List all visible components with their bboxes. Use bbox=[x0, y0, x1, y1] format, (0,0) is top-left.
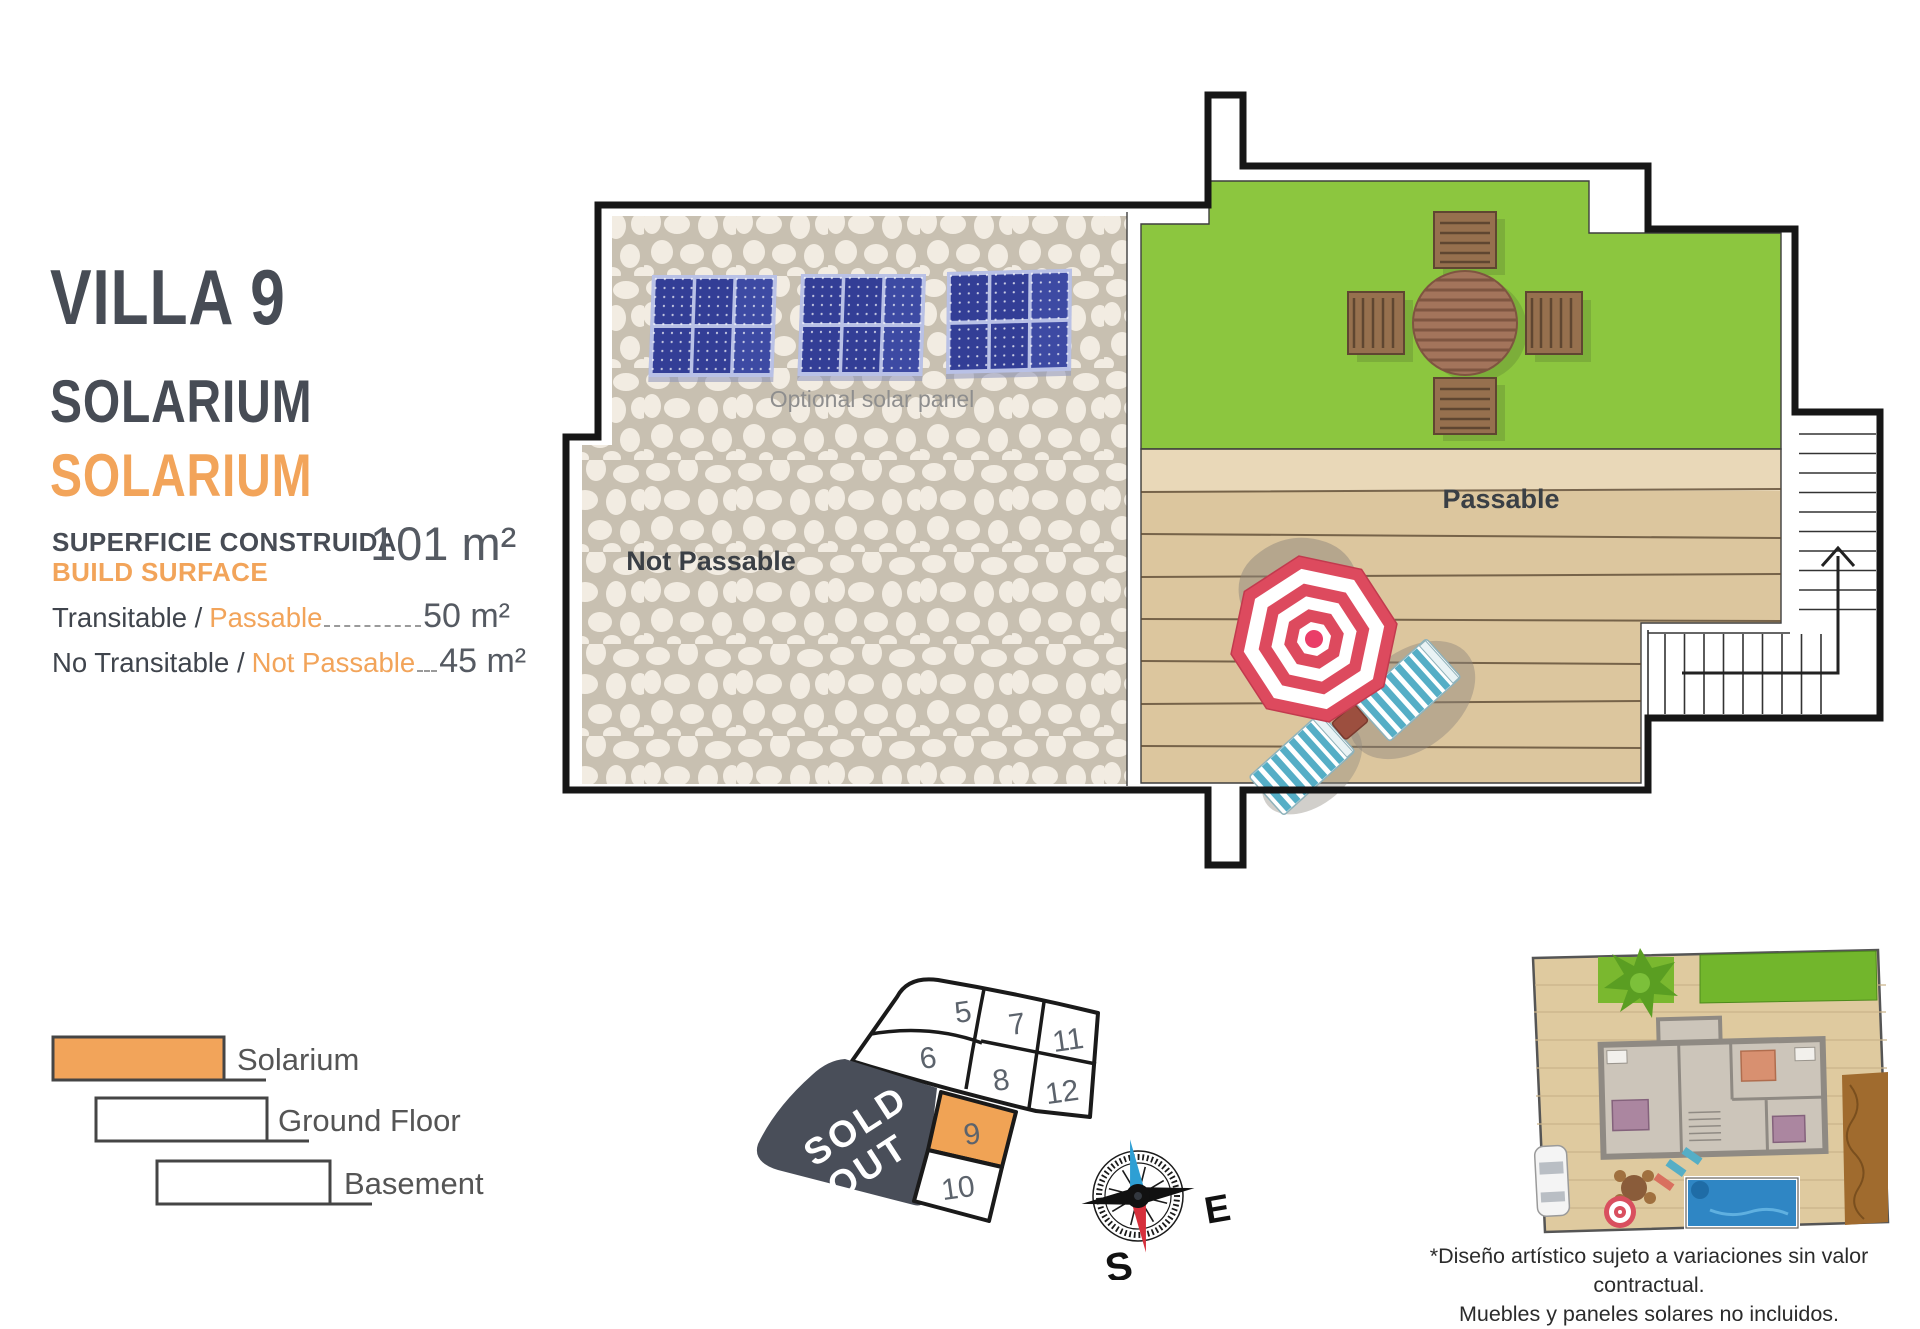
bed-icon bbox=[1741, 1050, 1776, 1081]
solarium-floor-plan: Optional solar panel Not Passable Passab… bbox=[566, 95, 1880, 865]
legend-label-solarium: Solarium bbox=[237, 1042, 359, 1077]
legend-label-basement: Basement bbox=[344, 1166, 484, 1201]
legend-swatch-solarium bbox=[53, 1037, 224, 1080]
compass-south-label: S bbox=[1102, 1244, 1136, 1280]
mini-umbrella bbox=[1604, 1196, 1636, 1228]
bath-fixture bbox=[1795, 1047, 1815, 1061]
minimap-dirt bbox=[1842, 1072, 1888, 1225]
pool-icon bbox=[1686, 1178, 1798, 1228]
disclaimer-line-2: Muebles y paneles solares no incluidos. bbox=[1399, 1300, 1899, 1329]
bath-fixture bbox=[1607, 1050, 1627, 1064]
chair-icon bbox=[1348, 292, 1404, 354]
bed-icon bbox=[1773, 1116, 1806, 1143]
minimap-hedge bbox=[1700, 951, 1877, 1003]
chair-icon bbox=[1434, 378, 1496, 434]
compass-icon: E S bbox=[1074, 1132, 1234, 1280]
not-passable-label: Not Passable bbox=[626, 546, 796, 576]
chair-icon bbox=[1526, 292, 1582, 354]
plot-number-11: 11 bbox=[1050, 1022, 1085, 1059]
solar-panel-icon bbox=[648, 275, 777, 382]
brochure-page: { "header": { "title": "VILLA 9", "subti… bbox=[0, 0, 1920, 1280]
chair-icon bbox=[1434, 212, 1496, 268]
legend-swatch-ground-floor bbox=[96, 1098, 267, 1141]
solar-panel-icon bbox=[946, 269, 1072, 379]
optional-solar-panels bbox=[648, 269, 1072, 382]
solar-panel-icon bbox=[797, 274, 926, 381]
floorplan-canvas: Optional solar panel Not Passable Passab… bbox=[0, 0, 1920, 1280]
plot-number-10: 10 bbox=[939, 1170, 977, 1207]
optional-solar-panel-label: Optional solar panel bbox=[770, 386, 975, 412]
passable-label: Passable bbox=[1442, 484, 1559, 514]
legend-swatch-basement bbox=[157, 1161, 330, 1204]
legend-label-ground-floor: Ground Floor bbox=[278, 1103, 461, 1138]
car-icon bbox=[1534, 1145, 1570, 1217]
plot-location-map: SOLD OUT 5 7 11 6 8 12 9 10 bbox=[757, 979, 1098, 1221]
site-minimap bbox=[1533, 948, 1888, 1232]
compass-east-label: E bbox=[1201, 1187, 1233, 1233]
floor-legend: Solarium Ground Floor Basement bbox=[53, 1037, 484, 1204]
bed-icon bbox=[1612, 1100, 1649, 1131]
plot-number-12: 12 bbox=[1043, 1074, 1081, 1111]
